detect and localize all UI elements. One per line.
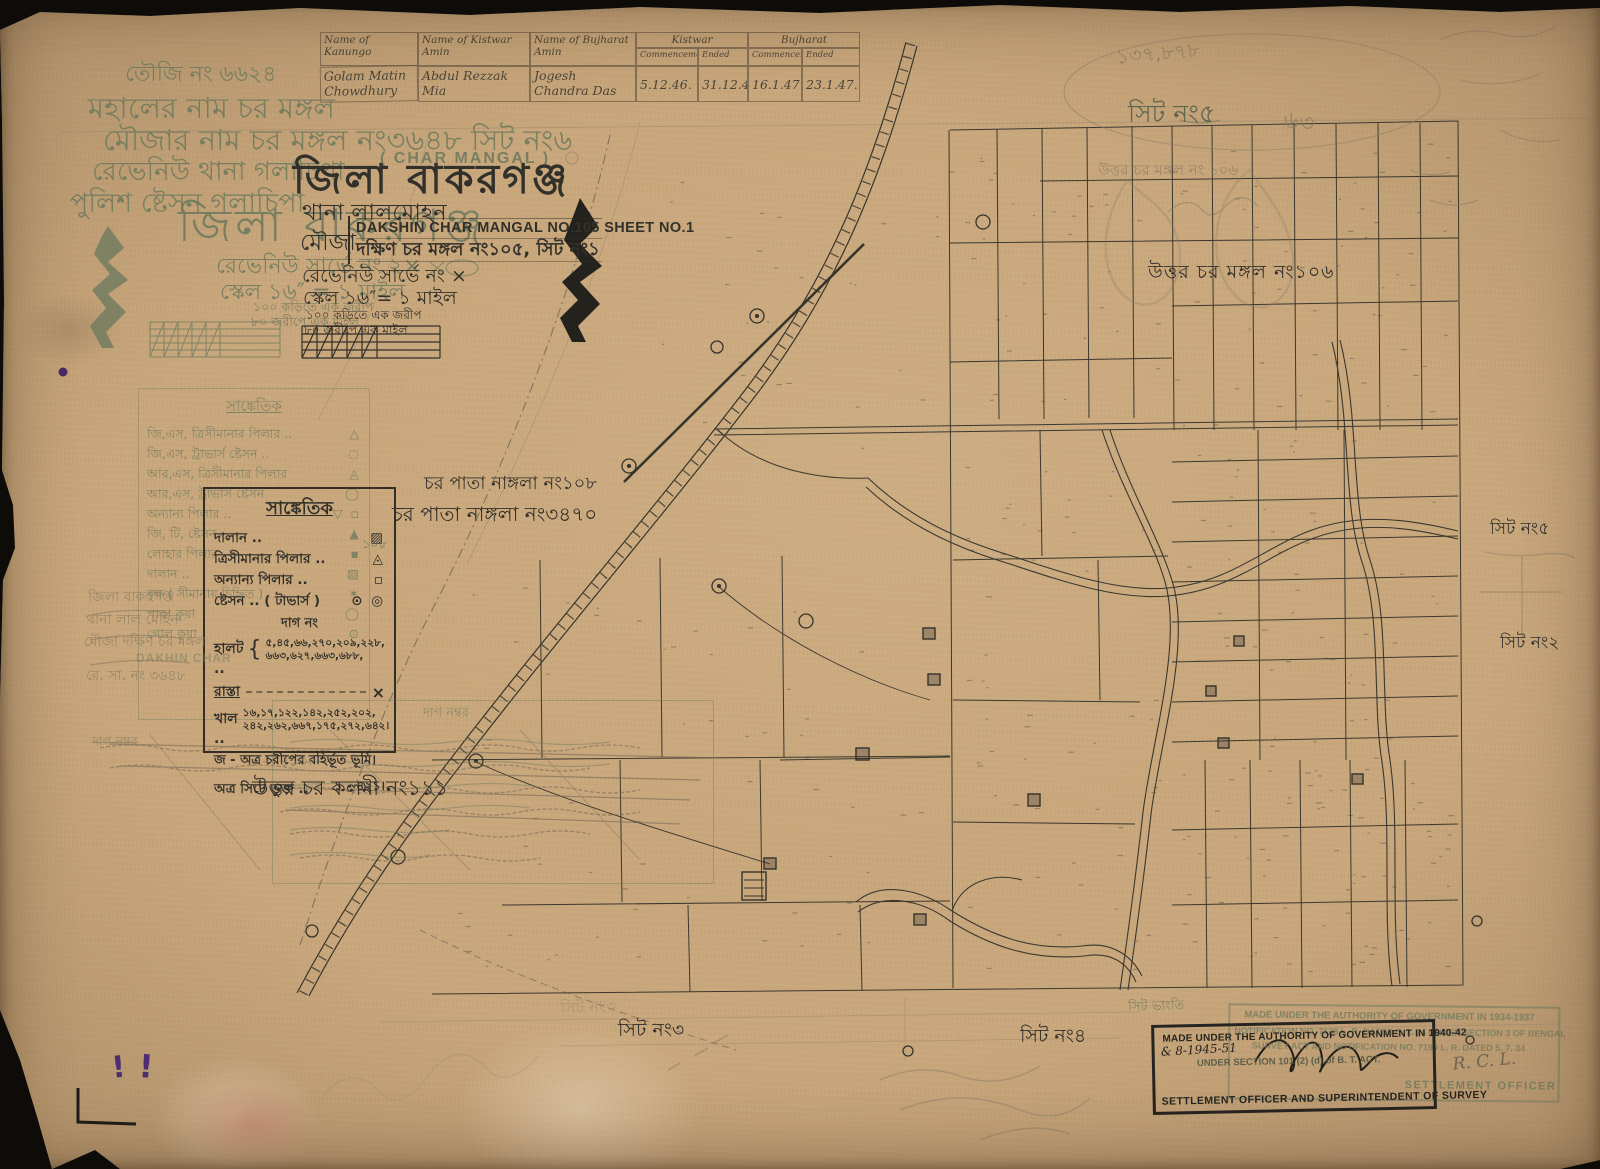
ink-stamp-section-line: UNDER SECTION 101 (2) (d) of B. T. ACT. — [1197, 1055, 1381, 1070]
cell-kistwar-ended: 31.12.46. — [698, 66, 748, 102]
label-sheet-3: সিট নং৩ — [618, 1020, 684, 1042]
rasta-x: × — [372, 683, 385, 702]
rasta-line-symbol — [246, 691, 366, 693]
mouza-title-box: DAKSHIN CHAR MANGAL NO.105 SHEET NO.1 দক… — [348, 216, 602, 264]
paper-sheet: Name of Kanungo Name of Kistwar Amin Nam… — [0, 0, 1600, 1169]
khal-channels — [476, 340, 1458, 990]
legend-label: ত্রিসীমানার পিলার .. — [214, 549, 325, 570]
ink-authority-stamp: MADE UNDER THE AUTHORITY OF GOVERNMENT I… — [1151, 1019, 1437, 1115]
legend-label: ষ্টেসন .. ( টাভার্স ) — [214, 591, 320, 612]
table-sub-commencement2: Commencement — [748, 48, 802, 66]
pencil-sheet-5: সিট নং৫ — [1128, 100, 1215, 129]
mahal-name: মহালের নাম চর মঙ্গল — [88, 92, 335, 125]
label-sheet-5: সিট নং৫ — [1490, 520, 1549, 540]
building-hatch — [744, 880, 764, 896]
halot-numbers-line2: ৬৬৩,৬২৭,৬৬৩,৬৮৮, — [266, 650, 364, 662]
legend-label: দালান .. — [147, 564, 190, 584]
label-uttar-char-kalmi-111: উত্তর চর কলমী নং১১১ — [252, 776, 448, 800]
purple-ink-dot — [59, 368, 68, 377]
pencil-dag-nombor: দাগ নম্বর — [92, 736, 138, 751]
survey-station-circles — [306, 215, 1482, 1056]
label-sheet-2: সিট নং২ — [1500, 634, 1559, 654]
khal-label: খাল .. — [214, 707, 238, 747]
scale-note2-ink: ৮০ জরীপে এক মাইল — [304, 324, 408, 338]
legend-label: জি,এস, ট্রাভার্স ষ্টেসন .. — [147, 444, 269, 464]
label-char-pata-nangla-3470: চর পাতা নাঙ্গলা নং৩৪৭০ — [392, 503, 597, 526]
pencil-rs-number-note: রে. সা. নং ৩৬৪৮ — [86, 668, 186, 684]
mouza-title-bengali: দক্ষিণ চর মঙ্গল নং১০৫, সিট নং১ — [356, 239, 602, 263]
building-symbols — [742, 628, 1363, 925]
table-header-kistwar-amin: Name of Kistwar Amin — [418, 32, 530, 66]
table-sub-ended1: Ended — [698, 48, 748, 66]
purple-exclamation-2: ! — [137, 1048, 154, 1086]
legend-label: জি,এস, ত্রিসীমানার পিলার .. — [147, 424, 292, 444]
halot-brace: { — [248, 637, 262, 677]
label-108-green: ১০৮ — [362, 538, 387, 553]
legend-item: অন্যান্য পিলার ..▫ — [214, 570, 385, 591]
station-traverse-symbol: ⊙ ◎ — [351, 591, 385, 612]
table-sub-commencement1: Commencement — [636, 48, 698, 66]
legend-label: অন্যান্য পিলার .. — [214, 570, 308, 591]
scale-note1-ink: ১০০ কড়িতে এক জরীপ — [306, 309, 422, 323]
green-stamp-signature: R. C. L. — [1452, 1050, 1517, 1075]
mouza-title-english: DAKSHIN CHAR MANGAL NO.105 SHEET NO.1 — [356, 218, 602, 239]
scale-ink: স্কেল ১৬″= ১ মাইল — [303, 288, 457, 310]
pencil-district-note: জিলা বাকরগঞ্জ — [88, 588, 174, 606]
table-group-bujharat: Bujharat — [748, 32, 860, 48]
pencil-mouza-note: মৌজা দক্ষিণ চর মঙ্গল — [84, 634, 205, 650]
district-title-ink: জিলা বাকরগঞ্জ — [293, 156, 570, 203]
dag-no-label: দাগ নং — [214, 614, 385, 635]
legend-ink-title: সাঙ্কেতিক — [214, 494, 385, 525]
cell-bujharat-ended: 23.1.47. — [802, 66, 860, 102]
label-uttar-char-mangal-106: উত্তর চর মঙ্গল নং১০৬ — [1148, 262, 1335, 284]
table-header-kanungo: Name of Kanungo — [320, 32, 418, 66]
label-char-pata-nangla-108: চর পাতা নাঙ্গলা নং১০৮ — [424, 474, 597, 495]
cell-bujharat-commencement: 16.1.47. — [748, 66, 802, 102]
cell-kistwar-amin-name: Abdul Rezzak Mia — [418, 66, 530, 102]
legend-green-title: সাঙ্কেতিক — [147, 395, 361, 420]
cell-bujharat-amin-name: Jogesh Chandra Das — [530, 66, 636, 102]
legend-item: দালান ..▨ — [214, 528, 385, 549]
green-sit-bhangti: সিট ভাংতি — [1128, 999, 1185, 1016]
legend-item: জি,এস, ট্রাভার্স ষ্টেসন ..◌ — [147, 444, 361, 464]
corner-l-mark — [78, 1088, 136, 1124]
cell-kistwar-commencement: 5.12.46. — [636, 66, 698, 102]
rs-tri-pillar-symbol: ◬ — [349, 464, 361, 484]
legend-label: দালান .. — [214, 528, 262, 549]
legend-item: ষ্টেসন .. ( টাভার্স )⊙ ◎ — [214, 591, 385, 612]
legend-item: আর,এস, ত্রিসীমানার পিলার◬ — [147, 464, 361, 484]
table-header-bujharat-amin: Name of Bujharat Amin — [530, 32, 636, 66]
halot-numbers: ৫,৪৫,৬৬,২৭০,২০৯,২২৮, ৬৬৩,৬২৭,৬৬৩,৬৮৮, — [266, 637, 385, 677]
label-sheet-4: সিট নং৪ — [1020, 1026, 1086, 1048]
gs-traverse-station-symbol: ◌ — [348, 444, 361, 464]
gs-tri-pillar-symbol: △ — [349, 424, 361, 444]
pencil-1-413: ১ — ৪১৩। — [248, 754, 312, 770]
touzi-number: তৌজি নং ৬৬২৪ — [125, 62, 276, 87]
dag-box-title: দাগ নম্বর — [423, 707, 469, 722]
green-brace-ornament — [90, 226, 128, 348]
legend-item: জি,এস, ত্রিসীমানার পিলার ..△ — [147, 424, 361, 444]
legend-item: ত্রিসীমানার পিলার ..◬ — [214, 549, 385, 570]
pencil-63: ৬৩ — [1281, 106, 1317, 139]
rasta-label: রাস্তা — [214, 680, 240, 704]
pencil-dakhin-char-english: DAKHIN CHAR — [136, 652, 232, 666]
revenue-survey-ink: রেভেনিউ সার্ভে নং × — [302, 266, 467, 288]
pencil-thana-note: থানা লাল মোহন — [86, 612, 179, 628]
halot-numbers-line1: ৫,৪৫,৬৬,২৭০,২০৯,২২৮, — [266, 637, 385, 649]
label-sheet-3-pencil-ghost: সিট নং৩ — [560, 997, 617, 1018]
scanned-survey-map-sheet: Name of Kanungo Name of Kistwar Amin Nam… — [0, 0, 1600, 1169]
table-sub-ended2: Ended — [802, 48, 860, 66]
table-group-kistwar: Kistwar — [636, 32, 748, 48]
legend-label: আর,এস, ত্রিসীমানার পিলার — [147, 464, 287, 484]
other-pillar-symbol: ▫ — [374, 570, 385, 591]
pencil-uttar-char-mangal-106: উত্তর চর মঙ্গল নং ১০৬ — [1098, 162, 1238, 179]
